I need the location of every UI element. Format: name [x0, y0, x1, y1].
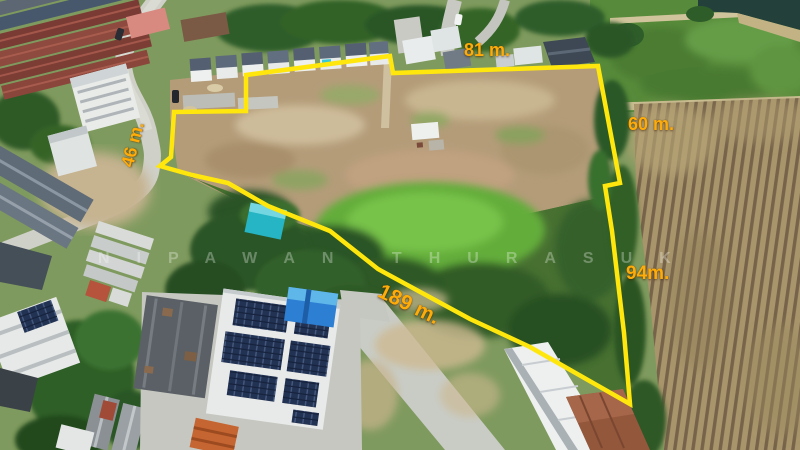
aerial-photo-canvas: [0, 0, 800, 450]
dark-gray-factory: [134, 295, 218, 398]
dimension-label-top: 81 m.: [464, 40, 510, 61]
dimension-label-right-upper: 60 m.: [628, 114, 674, 135]
blue-canopy: [284, 287, 338, 328]
dimension-label-right-lower: 94m.: [626, 263, 669, 285]
watermark-text: NIPAWAN THURASUK: [98, 250, 698, 268]
aerial-photo-land-plot: NIPAWAN THURASUK 81 m. 60 m. 94m. 189 m.…: [0, 0, 800, 450]
